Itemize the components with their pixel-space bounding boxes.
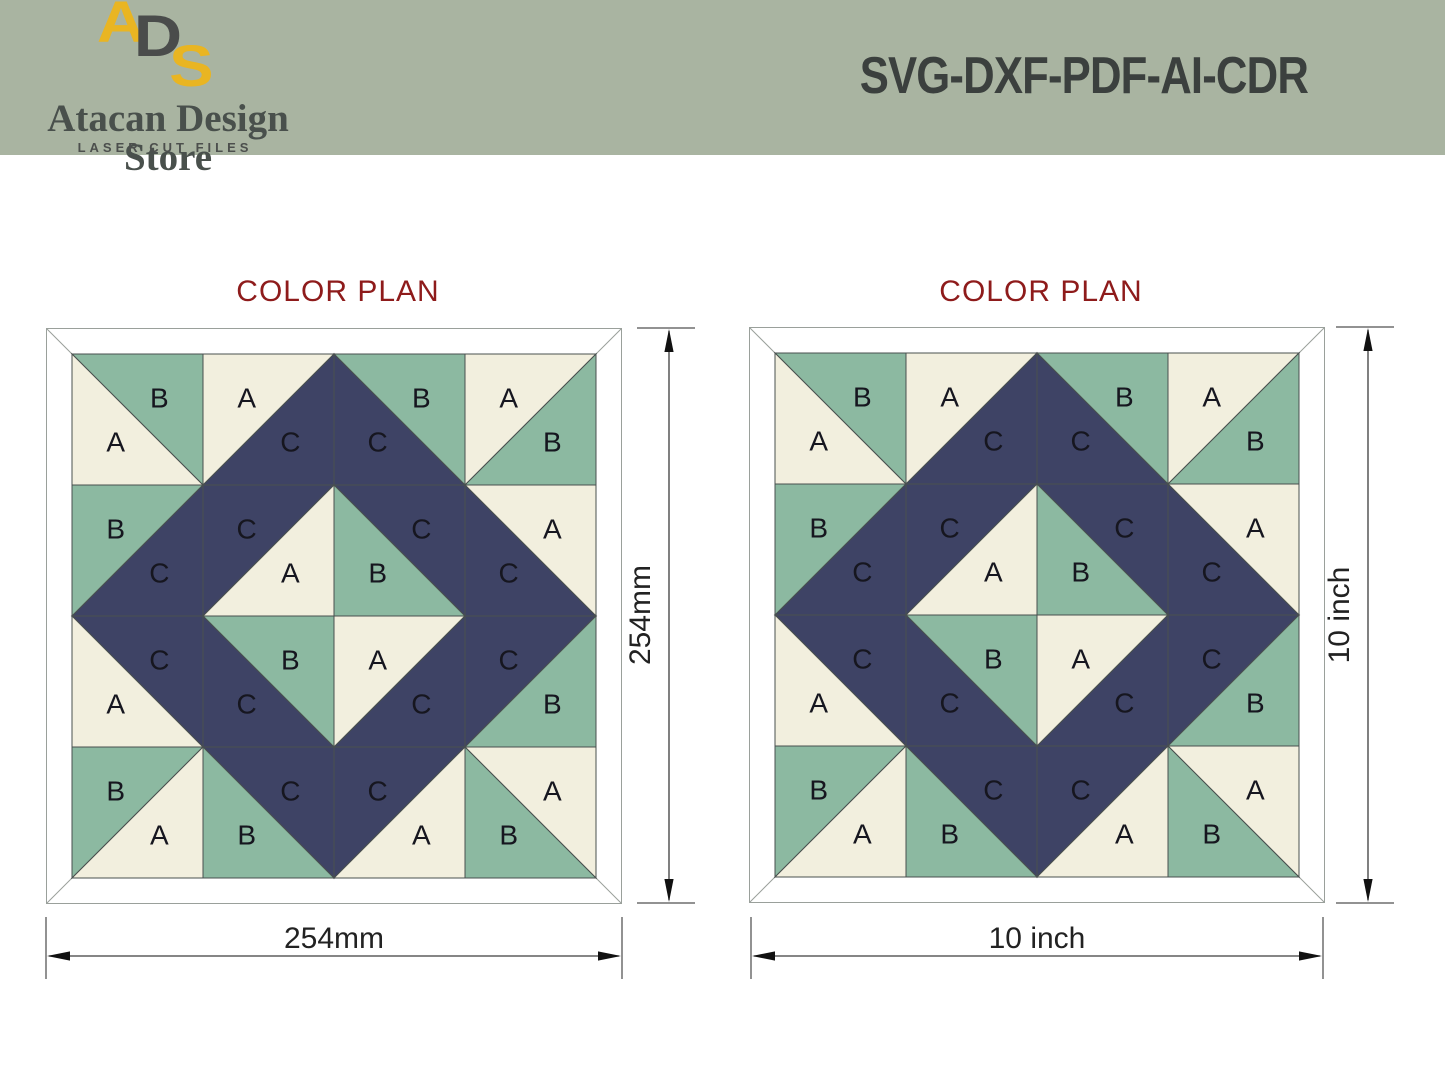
quilt-cell: CB [1037,484,1168,615]
quilt-cell: CB [906,746,1037,877]
quilt-cell: AC [1168,484,1299,615]
quilt-cell: BC [334,354,465,485]
patch-letter: C [940,513,960,544]
patch-letter: C [368,426,388,457]
patch-letter: B [412,383,431,414]
patch-letter: A [237,383,256,414]
patch-letter: B [150,383,169,414]
patch-letter: B [1115,382,1134,413]
patch-letter: C [1114,687,1134,718]
patch-letter: A [809,687,828,718]
patch-letter: B [106,776,125,807]
patch-letter: A [106,688,125,719]
file-formats-text: SVG-DXF-PDF-AI-CDR [722,50,1445,102]
height-dimension-label-left: 254mm [624,565,657,665]
patch-letter: A [543,776,562,807]
patch-letter: B [499,819,518,850]
quilt-cell: BA [775,353,906,484]
quilt-cell: BC [906,615,1037,746]
patch-letter: B [853,382,872,413]
patch-letter: A [1115,818,1134,849]
patch-letter: C [852,556,872,587]
patch-letter: C [1202,644,1222,675]
patch-letter: C [149,557,169,588]
quilt-cell: BA [775,746,906,877]
patch-letter: C [1071,775,1091,806]
header-band: A D S Atacan Design Store LASER CUT FILE… [0,0,1445,155]
quilt-cell: CA [1037,746,1168,877]
quilt-block: BAACBCABBCCACBACCABCACCBBACBCAAB [46,328,622,904]
patch-letter: C [940,687,960,718]
quilt-cell: AB [465,354,596,485]
patch-letter: B [984,644,1003,675]
patch-letter: C [1202,556,1222,587]
patch-letter: C [411,514,431,545]
height-dimension-label-right: 10 inch [1323,567,1356,664]
patch-letter: C [237,688,257,719]
patch-letter: A [412,819,431,850]
patch-letter: C [1114,513,1134,544]
store-tagline: LASER CUT FILES [0,140,330,155]
patch-letter: A [499,383,518,414]
patch-letter: B [106,514,125,545]
color-plan-title-left: COLOR PLAN [50,277,626,307]
quilt-cell: CB [334,485,465,616]
patch-letter: B [1071,556,1090,587]
quilt-block: BAACBCABBCCACBACCABCACCBBACBCAAB [749,327,1325,903]
patch-letter: C [280,426,300,457]
patch-letter: A [1202,382,1221,413]
quilt-cell: AB [1168,746,1299,877]
width-dimension-label-left: 254mm [284,922,384,955]
patch-letter: A [940,382,959,413]
patch-letter: C [368,776,388,807]
patch-letter: C [149,645,169,676]
quilt-cell: CA [906,484,1037,615]
patch-letter: A [1246,775,1265,806]
patch-letter: B [1246,687,1265,718]
patch-letter: A [106,426,125,457]
store-name: Atacan Design Store [8,99,328,177]
quilt-cell: AC [906,353,1037,484]
quilt-cell: CA [334,747,465,878]
patch-letter: B [543,688,562,719]
quilt-cell: AC [1037,615,1168,746]
width-dimension-label-right: 10 inch [989,922,1086,955]
color-plan-title-right: COLOR PLAN [753,277,1329,307]
patch-letter: C [1071,425,1091,456]
patch-letter: C [499,645,519,676]
patch-letter: C [983,775,1003,806]
patch-letter: B [940,818,959,849]
quilt-cell: CB [203,747,334,878]
patch-letter: C [852,644,872,675]
quilt-cell: AB [465,747,596,878]
patch-letter: B [368,557,387,588]
dim-right-width: 10 inch [751,917,1323,979]
patch-letter: A [809,425,828,456]
patch-letter: C [280,776,300,807]
quilt-cell: AB [1168,353,1299,484]
quilt-cell: AC [203,354,334,485]
page: A D S Atacan Design Store LASER CUT FILE… [0,0,1445,1084]
patch-letter: B [809,513,828,544]
patch-letter: B [237,819,256,850]
quilt-cell: CA [72,616,203,747]
patch-letter: A [984,556,1003,587]
patch-letter: C [983,425,1003,456]
patch-letter: A [853,818,872,849]
patch-letter: B [1202,818,1221,849]
patch-letter: A [1246,513,1265,544]
quilt-cell: BC [203,616,334,747]
patch-letter: C [499,557,519,588]
patch-letter: B [1246,425,1265,456]
quilt-cell: CB [1168,615,1299,746]
patch-letter: A [1071,644,1090,675]
quilt-cell: BC [1037,353,1168,484]
quilt-cell: BC [775,484,906,615]
patch-letter: C [411,688,431,719]
quilt-cell: AC [465,485,596,616]
quilt-cell: CA [203,485,334,616]
patch-letter: B [543,426,562,457]
patch-letter: B [281,645,300,676]
logo-letter-s: S [169,38,213,96]
patch-letter: C [237,514,257,545]
dim-left-height: 254mm [624,328,695,903]
patch-letter: A [150,819,169,850]
patch-letter: A [368,645,387,676]
quilt-cell: BA [72,354,203,485]
patch-letter: A [543,514,562,545]
quilt-cell: BA [72,747,203,878]
quilt-cell: CB [465,616,596,747]
quilt-cell: CA [775,615,906,746]
dim-right-height: 10 inch [1323,327,1394,903]
quilt-cell: BC [72,485,203,616]
patch-letter: B [809,775,828,806]
patch-letter: A [281,557,300,588]
quilt-cell: AC [334,616,465,747]
dim-left-width: 254mm [46,917,622,979]
